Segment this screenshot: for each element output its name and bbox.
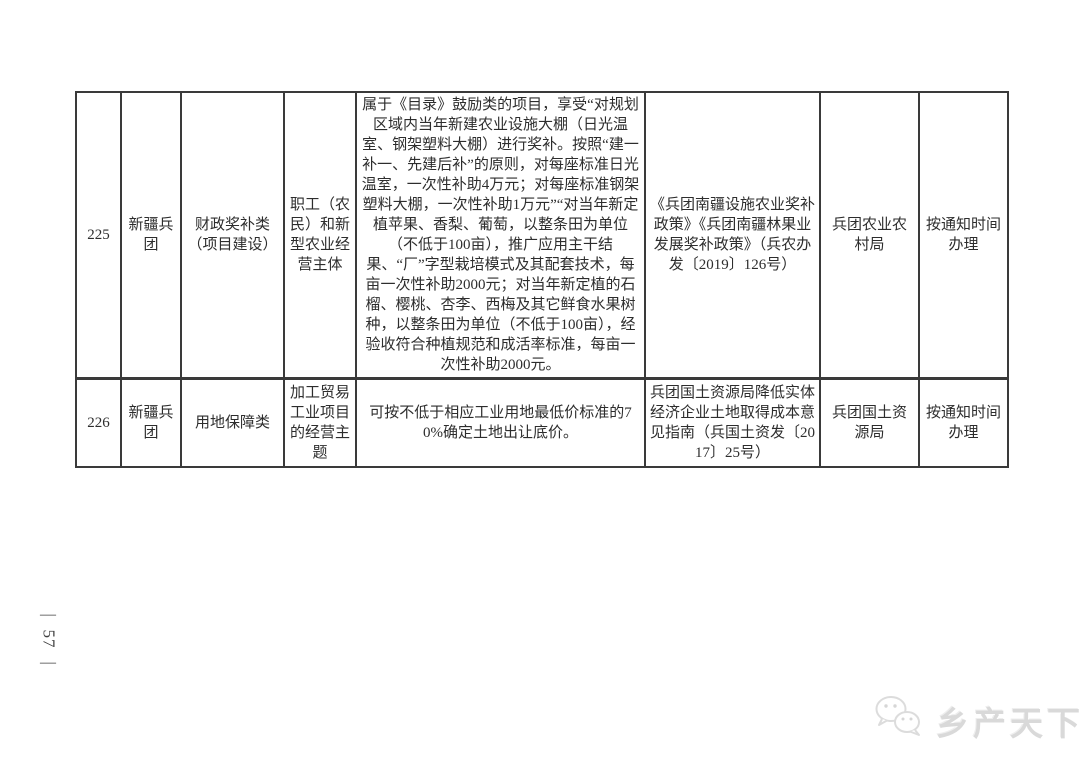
policy-table: 225 新疆兵团 财政奖补类（项目建设） 职工（农民）和新型农业经营主体 属于《… xyxy=(75,91,1009,468)
page-number-dash: — xyxy=(40,610,56,620)
content-cell: 属于《目录》鼓励类的项目，享受“对规划区域内当年新建农业设施大棚（日光温室、钢架… xyxy=(356,92,645,379)
watermark: 乡产天下 xyxy=(872,694,1080,747)
side-page-number: — 57 — xyxy=(26,584,70,694)
page-number-dash: — xyxy=(40,658,56,668)
table-row: 226 新疆兵团 用地保障类 加工贸易工业项目的经营主题 可按不低于相应工业用地… xyxy=(76,379,1008,467)
department-cell: 兵团国土资源局 xyxy=(820,379,919,467)
policy-document-cell: 兵团国土资源局降低实体经济企业土地取得成本意见指南（兵国土资发〔2017〕25号… xyxy=(645,379,820,467)
subject-cell: 职工（农民）和新型农业经营主体 xyxy=(284,92,356,379)
schedule-cell: 按通知时间办理 xyxy=(919,379,1008,467)
region-cell: 新疆兵团 xyxy=(121,379,181,467)
watermark-text: 乡产天下 xyxy=(936,697,1080,745)
category-cell: 用地保障类 xyxy=(181,379,284,467)
row-number-cell: 226 xyxy=(76,379,121,467)
page-number-value: 57 xyxy=(38,630,58,649)
subject-cell: 加工贸易工业项目的经营主题 xyxy=(284,379,356,467)
department-cell: 兵团农业农村局 xyxy=(820,92,919,379)
row-number-cell: 225 xyxy=(76,92,121,379)
policy-document-cell: 《兵团南疆设施农业奖补政策》《兵团南疆林果业发展奖补政策》（兵农办发〔2019〕… xyxy=(645,92,820,379)
table-row: 225 新疆兵团 财政奖补类（项目建设） 职工（农民）和新型农业经营主体 属于《… xyxy=(76,92,1008,379)
wechat-chat-bubbles-icon xyxy=(872,694,926,747)
category-cell: 财政奖补类（项目建设） xyxy=(181,92,284,379)
content-cell: 可按不低于相应工业用地最低价标准的70%确定土地出让底价。 xyxy=(356,379,645,467)
schedule-cell: 按通知时间办理 xyxy=(919,92,1008,379)
document-page: 225 新疆兵团 财政奖补类（项目建设） 职工（农民）和新型农业经营主体 属于《… xyxy=(0,0,1080,763)
region-cell: 新疆兵团 xyxy=(121,92,181,379)
